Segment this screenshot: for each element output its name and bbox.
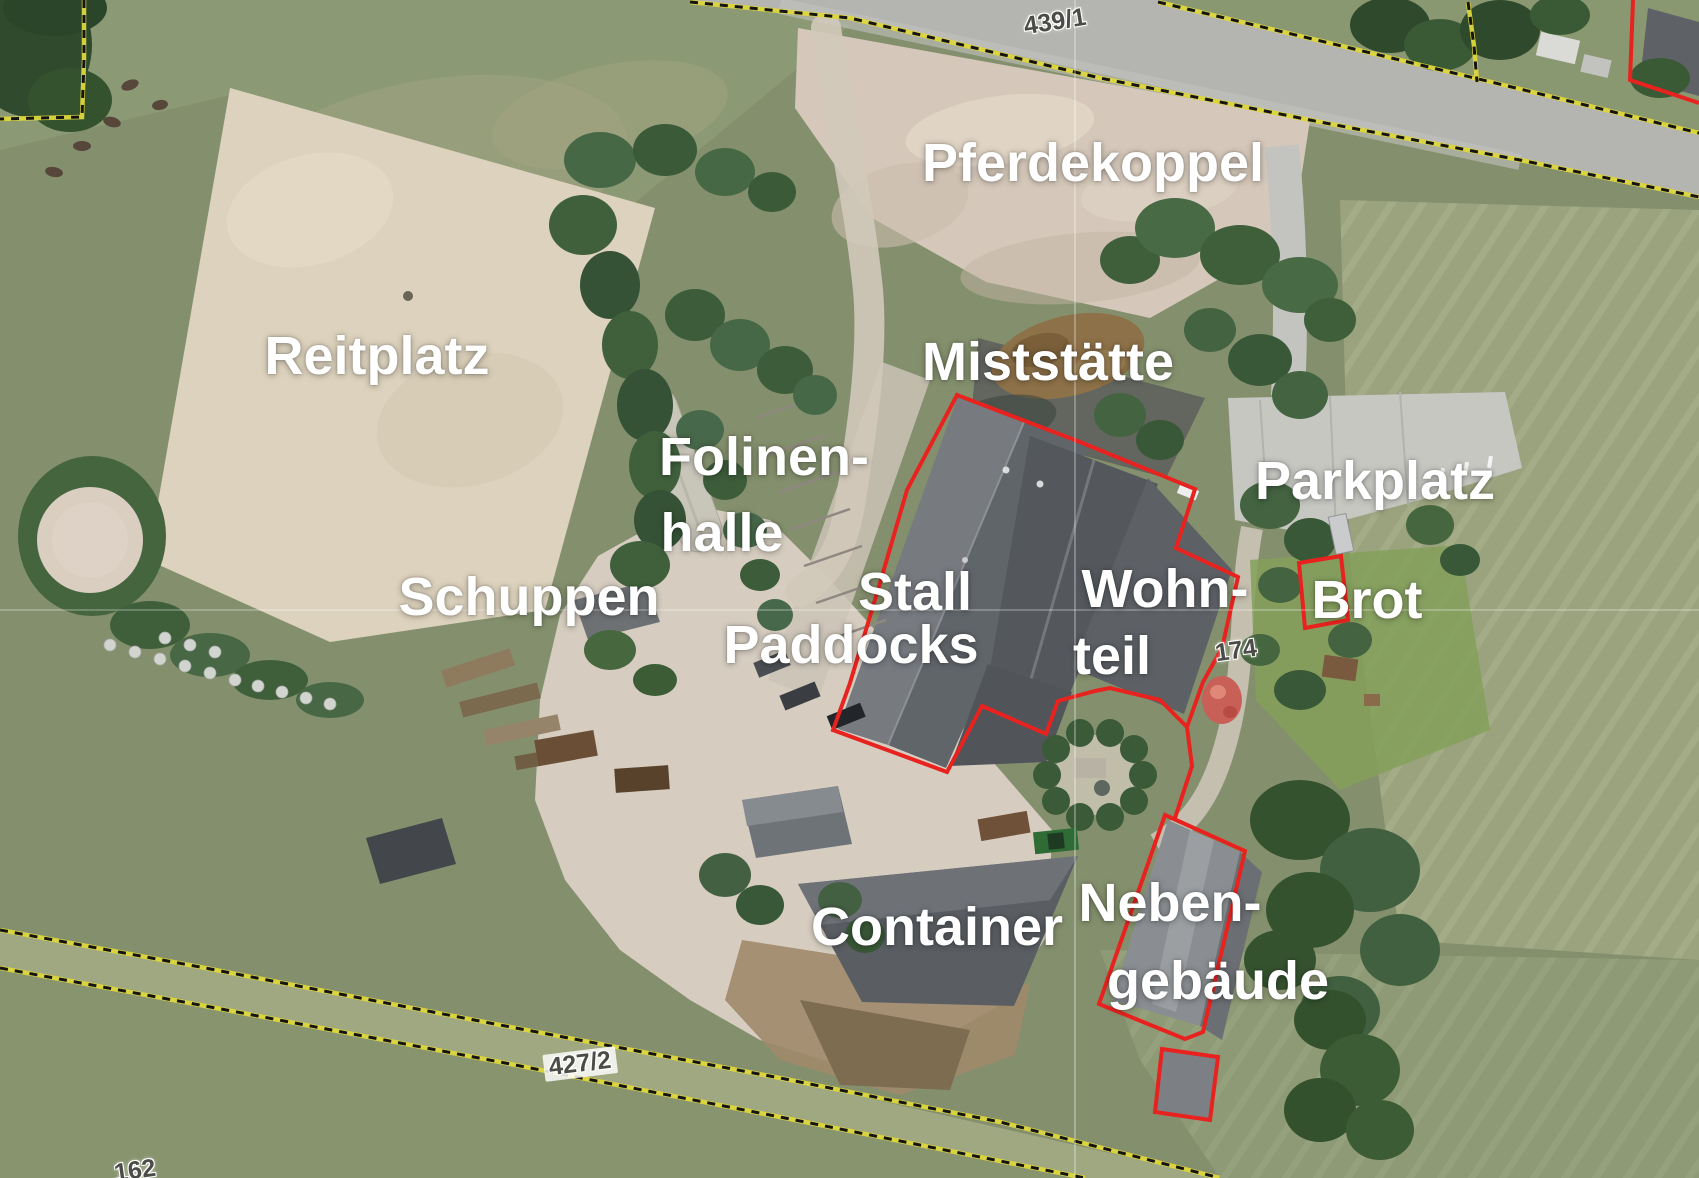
- aerial-photo: [0, 0, 1699, 1178]
- garden-circle: [1033, 719, 1157, 831]
- lunging-circle: [18, 456, 166, 616]
- annotated-aerial-map: Pferdekoppel Reitplatz Miststätte Foline…: [0, 0, 1699, 1178]
